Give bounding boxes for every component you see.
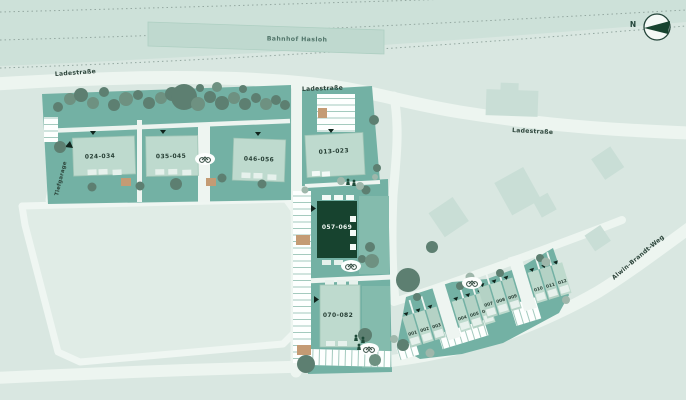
site-plan-map: Bahnhof Hasloh xyxy=(0,0,686,400)
compass-north-label: N xyxy=(630,20,636,29)
building-024-034[interactable]: 024-034 xyxy=(72,136,135,177)
building-label: 070-082 xyxy=(323,312,353,319)
bicycle-icon xyxy=(359,343,379,355)
bicycle-icon xyxy=(341,260,361,272)
building-057-069-selected[interactable]: 057-069 xyxy=(317,195,357,265)
building-label-selected: 057-069 xyxy=(322,224,352,231)
building-label: 024-034 xyxy=(85,153,116,161)
building-013-023[interactable]: 013-023 xyxy=(305,133,365,178)
building-070-082[interactable]: 070-082 xyxy=(320,280,360,347)
building-label: 046-056 xyxy=(244,155,275,163)
bicycle-icon xyxy=(195,153,215,165)
street-label-ladestrasse-mid: Ladestraße xyxy=(302,85,343,93)
station-label: Bahnhof Hasloh xyxy=(267,35,328,43)
field xyxy=(22,199,297,362)
building-046-056[interactable]: 046-056 xyxy=(232,138,285,182)
building-035-045[interactable]: 035-045 xyxy=(146,136,199,177)
building-label: 035-045 xyxy=(156,153,186,161)
bicycle-icon xyxy=(462,277,482,289)
